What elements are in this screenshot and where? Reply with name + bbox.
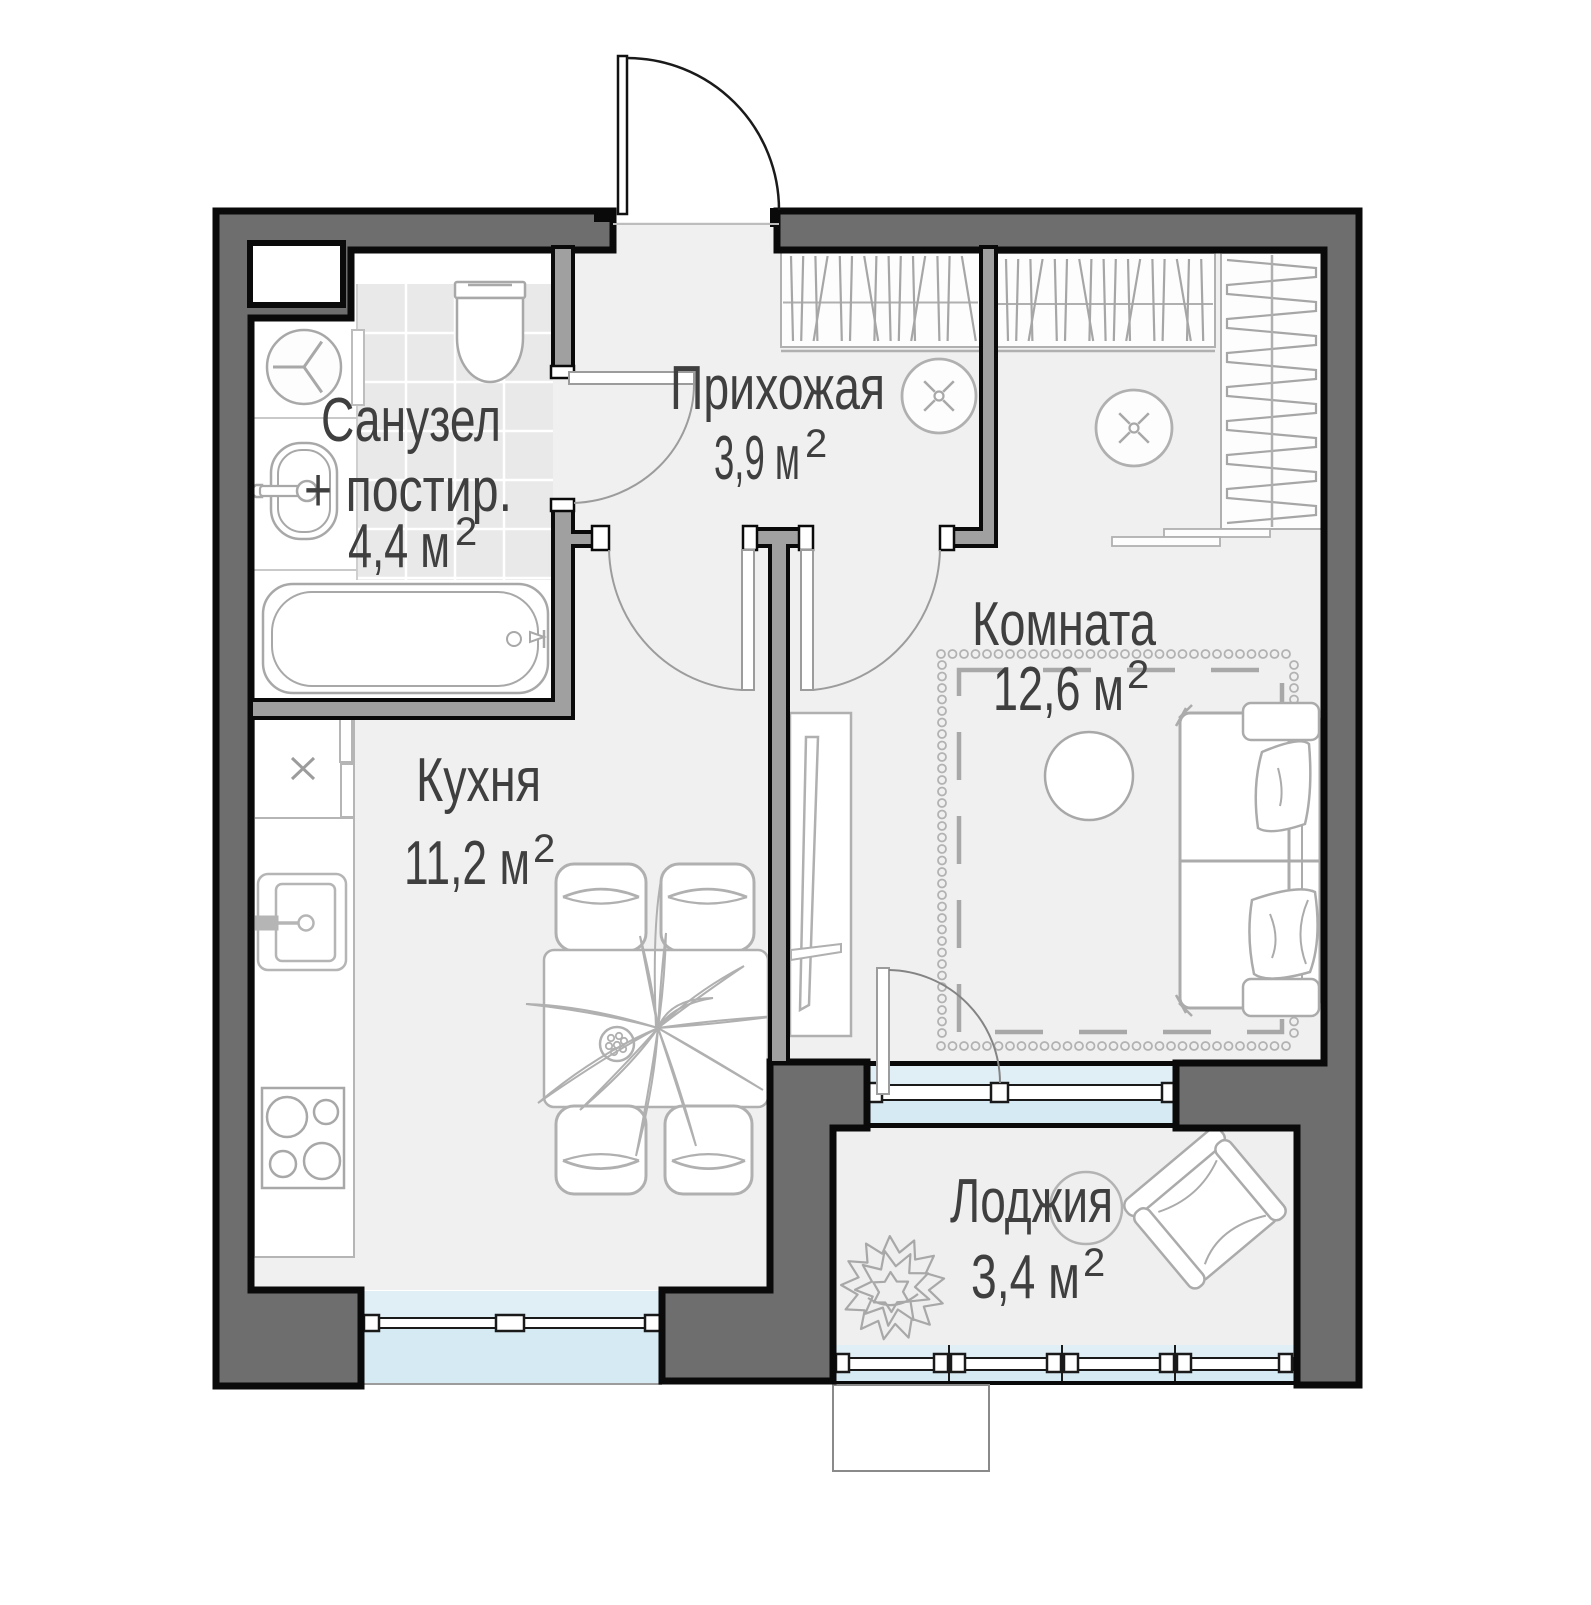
svg-text:3,4 м: 3,4 м	[971, 1243, 1080, 1312]
svg-text:Санузел: Санузел	[321, 386, 501, 455]
svg-text:11,2 м: 11,2 м	[404, 829, 530, 898]
svg-text:12,6 м: 12,6 м	[993, 655, 1124, 724]
svg-text:4,4 м: 4,4 м	[348, 512, 450, 581]
svg-text:2: 2	[1083, 1241, 1105, 1285]
svg-text:Прихожая: Прихожая	[670, 354, 885, 423]
svg-text:2: 2	[805, 422, 827, 466]
svg-text:2: 2	[533, 827, 555, 871]
svg-text:2: 2	[1127, 653, 1149, 697]
svg-text:2: 2	[455, 510, 477, 554]
svg-text:Кухня: Кухня	[416, 746, 541, 815]
svg-text:Лоджия: Лоджия	[950, 1167, 1113, 1236]
svg-text:3,9 м: 3,9 м	[714, 424, 800, 493]
svg-text:Комната: Комната	[972, 590, 1156, 659]
